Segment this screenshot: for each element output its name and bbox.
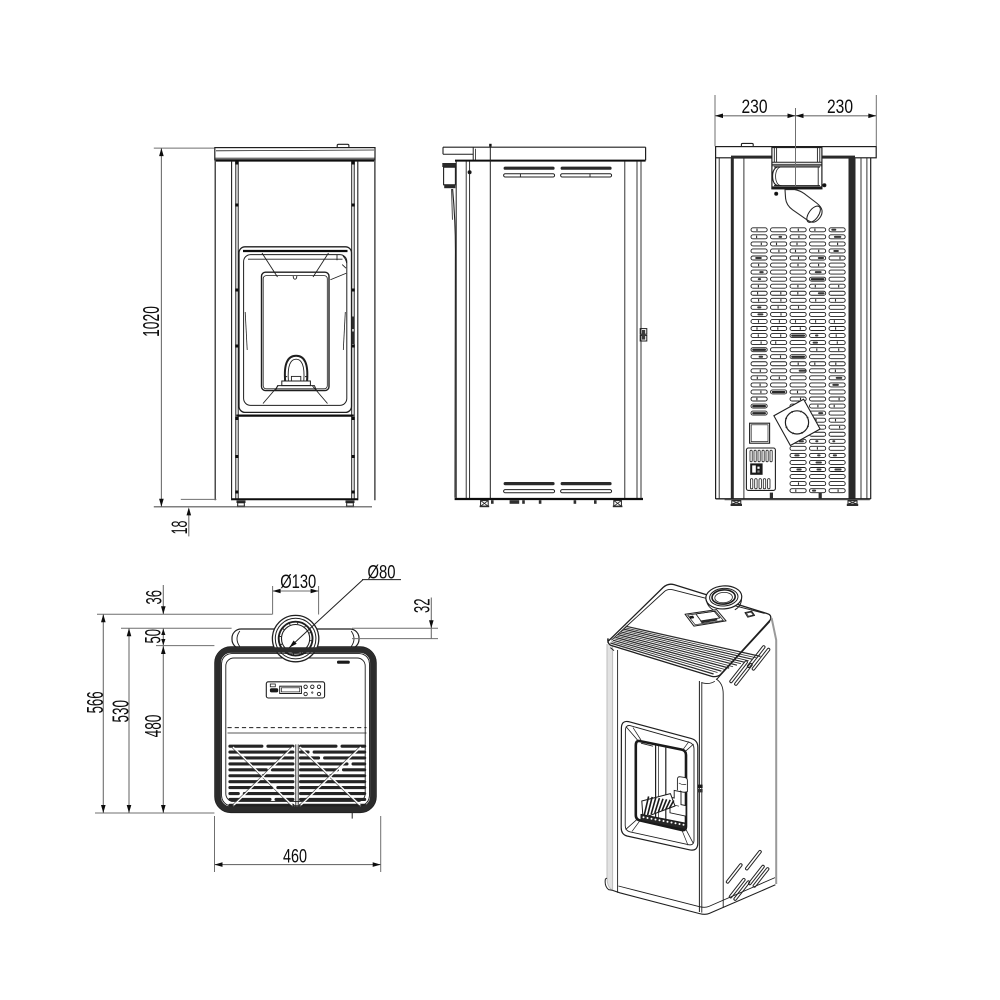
svg-text:230: 230 [742,96,768,118]
svg-text:460: 460 [283,845,307,867]
svg-text:480: 480 [140,715,166,738]
svg-text:Ø80: Ø80 [368,561,396,583]
svg-text:1020: 1020 [138,306,164,337]
svg-text:Ø130: Ø130 [280,571,316,593]
svg-text:18: 18 [167,521,192,535]
svg-text:32: 32 [410,599,435,614]
svg-text:230: 230 [827,96,853,118]
svg-text:566: 566 [82,691,108,713]
svg-text:530: 530 [107,700,133,722]
svg-text:36: 36 [142,590,167,605]
svg-text:50: 50 [141,629,166,644]
